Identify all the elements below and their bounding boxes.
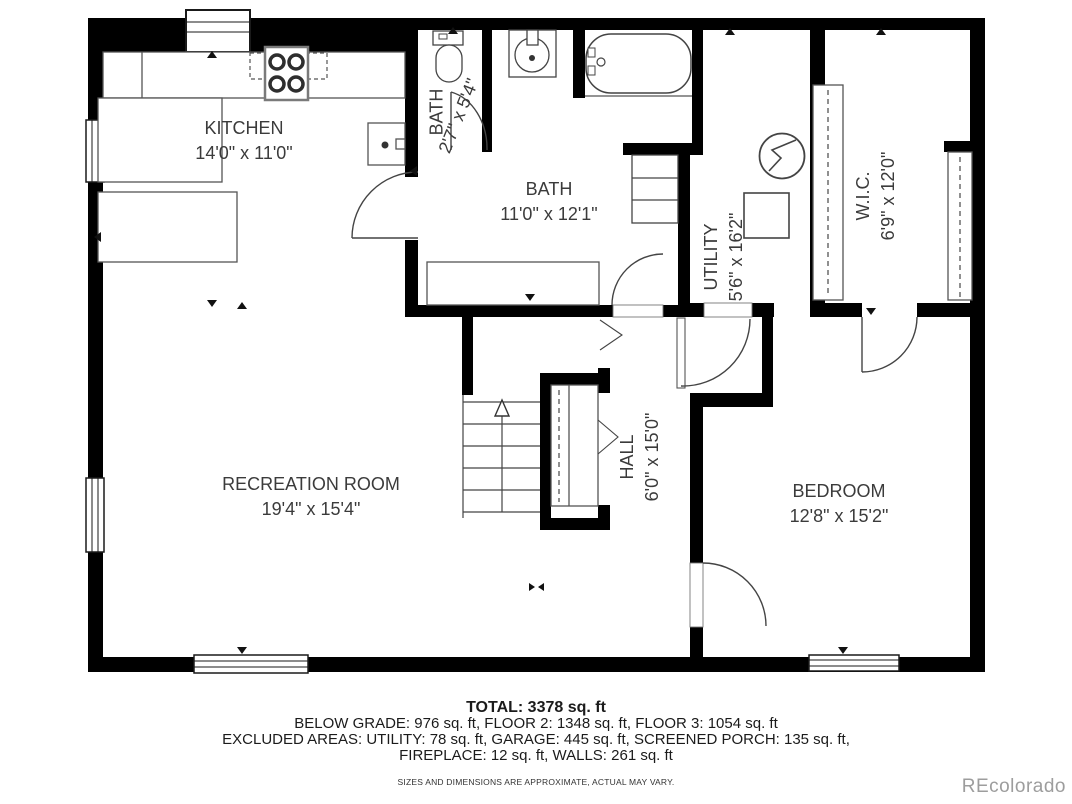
- room-dims: 19'4" x 15'4": [222, 497, 400, 522]
- staircase: [463, 395, 540, 518]
- floorplan-drawing: [0, 0, 1072, 804]
- water-heater-icon: [760, 134, 805, 179]
- recolorado-watermark: REcolorado: [962, 776, 1066, 798]
- recreation-left-window: [86, 478, 104, 552]
- area-summary: TOTAL: 3378 sq. ft BELOW GRADE: 976 sq. …: [0, 699, 1072, 787]
- room-name: HALL: [615, 413, 640, 502]
- excluded-areas-cont: FIREPLACE: 12 sq. ft, WALLS: 261 sq. ft: [0, 748, 1072, 764]
- wic-label: W.I.C. 6'9" x 12'0": [851, 152, 901, 241]
- room-name: RECREATION ROOM: [222, 472, 400, 497]
- room-dims: 6'0" x 15'0": [640, 413, 665, 502]
- bathtub-icon: [586, 34, 691, 93]
- bedroom-door: [690, 563, 766, 627]
- room-name: BEDROOM: [790, 479, 889, 504]
- floors-breakdown: BELOW GRADE: 976 sq. ft, FLOOR 2: 1348 s…: [0, 716, 1072, 732]
- total-area: TOTAL: 3378 sq. ft: [0, 699, 1072, 716]
- room-name: BATH: [500, 177, 597, 202]
- bedroom-label: BEDROOM 12'8" x 15'2": [790, 479, 889, 529]
- room-name: KITCHEN: [195, 116, 292, 141]
- wic-door: [862, 317, 917, 372]
- excluded-areas: EXCLUDED AREAS: UTILITY: 78 sq. ft, GARA…: [0, 732, 1072, 748]
- bedroom-bottom-window: [809, 655, 899, 671]
- kitchen-sink-icon: [368, 123, 405, 165]
- room-name: UTILITY: [699, 213, 724, 302]
- floorplan-page: KITCHEN 14'0" x 11'0" BATH 2'7" x 5'4" B…: [0, 0, 1072, 804]
- disclaimer: SIZES AND DIMENSIONS ARE APPROXIMATE, AC…: [0, 777, 1072, 787]
- bath-vanity: [427, 262, 599, 305]
- kitchen-label: KITCHEN 14'0" x 11'0": [195, 116, 292, 166]
- room-name: W.I.C.: [851, 152, 876, 241]
- hall-label: HALL 6'0" x 15'0": [615, 413, 665, 502]
- bath-door: [600, 254, 663, 350]
- furnace-icon: [744, 193, 789, 238]
- room-dims: 12'8" x 15'2": [790, 504, 889, 529]
- kitchen-door: [352, 172, 418, 238]
- room-dims: 5'6" x 16'2": [724, 213, 749, 302]
- hall-closet: [551, 385, 598, 506]
- toilet-icon: [433, 31, 463, 82]
- recreation-bottom-window: [194, 655, 308, 673]
- room-dims: 11'0" x 12'1": [500, 202, 597, 227]
- room-dims: 6'9" x 12'0": [876, 152, 901, 241]
- opening-marker: [600, 320, 622, 350]
- linen-shelves: [632, 155, 678, 223]
- room-dims: 14'0" x 11'0": [195, 141, 292, 166]
- recreation-label: RECREATION ROOM 19'4" x 15'4": [222, 472, 400, 522]
- utility-label: UTILITY 5'6" x 16'2": [699, 213, 749, 302]
- kitchen-bay-window: [186, 10, 250, 52]
- bath-sink-icon: [509, 30, 556, 77]
- stove-icon: [265, 47, 308, 100]
- bath-label: BATH 11'0" x 12'1": [500, 177, 597, 227]
